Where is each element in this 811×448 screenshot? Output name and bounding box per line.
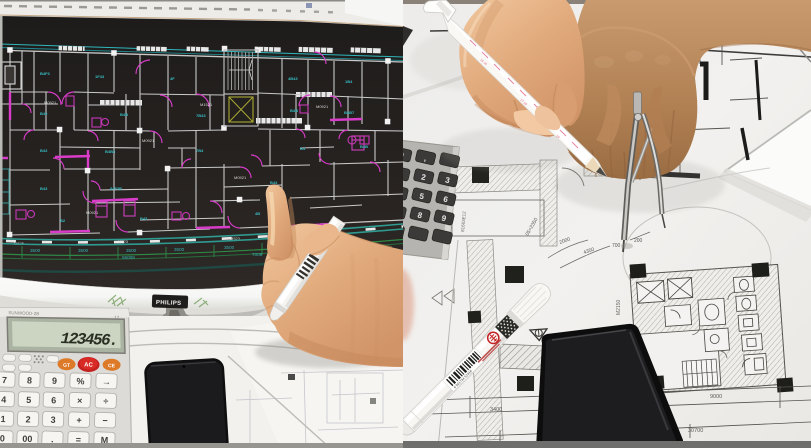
svg-text:5: 5 (26, 395, 31, 405)
svg-text:→: → (102, 376, 111, 386)
svg-text:−: − (102, 416, 108, 426)
svg-text:M0921: M0921 (44, 100, 57, 105)
svg-text:700: 700 (612, 243, 621, 249)
svg-text:1B4: 1B4 (345, 79, 353, 84)
svg-text:4: 4 (1, 394, 6, 404)
svg-text:B4B: B4B (290, 108, 298, 113)
svg-text:9: 9 (52, 376, 57, 386)
svg-text:123456.: 123456. (58, 330, 119, 350)
svg-text:×: × (77, 396, 83, 406)
svg-text:00: 00 (22, 434, 32, 444)
svg-text:B4B: B4B (360, 144, 368, 149)
svg-text:B4B7: B4B7 (344, 110, 355, 115)
svg-text:.: . (51, 434, 54, 444)
svg-text:B4: B4 (300, 146, 306, 151)
svg-text:3500: 3500 (126, 248, 137, 253)
svg-text:M0921: M0921 (86, 210, 99, 215)
svg-text:M1521: M1521 (200, 102, 213, 107)
svg-text:M0921: M0921 (142, 138, 155, 143)
svg-text:3500: 3500 (30, 248, 41, 253)
svg-text:B42: B42 (40, 111, 48, 116)
svg-text:4B43: 4B43 (288, 76, 298, 81)
svg-text:M0921: M0921 (234, 175, 247, 180)
svg-text:84F3B: 84F3B (110, 186, 122, 191)
svg-text:GT: GT (63, 363, 70, 369)
svg-text:4F: 4F (170, 76, 175, 81)
svg-text:AC: AC (84, 362, 94, 368)
svg-text:200: 200 (634, 238, 643, 244)
svg-text:%: % (76, 376, 84, 386)
svg-text:M0921: M0921 (316, 104, 329, 109)
svg-text:2: 2 (25, 414, 30, 424)
svg-text:B43: B43 (40, 148, 48, 153)
svg-text:B4B3: B4B3 (105, 149, 116, 154)
svg-text:B43: B43 (140, 216, 148, 221)
svg-text:1F43: 1F43 (95, 74, 105, 79)
svg-text:B43: B43 (40, 186, 48, 191)
svg-text:3: 3 (50, 415, 55, 425)
svg-text:B2: B2 (60, 218, 66, 223)
svg-text:7B4: 7B4 (196, 148, 204, 153)
svg-text:3500: 3500 (174, 247, 185, 252)
svg-text:30700: 30700 (688, 428, 703, 434)
svg-text:3400: 3400 (490, 407, 502, 413)
svg-text:7008: 7008 (252, 252, 263, 257)
svg-text:PHILIPS: PHILIPS (156, 300, 182, 307)
svg-text:CE: CE (108, 363, 116, 369)
svg-text:B43: B43 (270, 180, 278, 185)
svg-text:÷: ÷ (103, 396, 108, 406)
svg-text:6: 6 (51, 395, 56, 405)
svg-text:3500: 3500 (224, 245, 235, 250)
svg-text:9000: 9000 (710, 394, 722, 400)
svg-text:0: 0 (0, 433, 5, 443)
svg-text:7B43: 7B43 (196, 113, 206, 118)
svg-text:B4B: B4B (120, 112, 128, 117)
svg-text:1: 1 (0, 414, 5, 424)
svg-text:+: + (76, 415, 82, 425)
svg-text:56008: 56008 (122, 255, 135, 260)
svg-text:B4F3: B4F3 (40, 71, 51, 76)
svg-text:4B: 4B (255, 211, 260, 216)
svg-text:8: 8 (27, 375, 32, 385)
svg-text:3500: 3500 (78, 248, 89, 253)
svg-text:7: 7 (2, 375, 7, 385)
svg-text:M2150: M2150 (616, 299, 622, 315)
